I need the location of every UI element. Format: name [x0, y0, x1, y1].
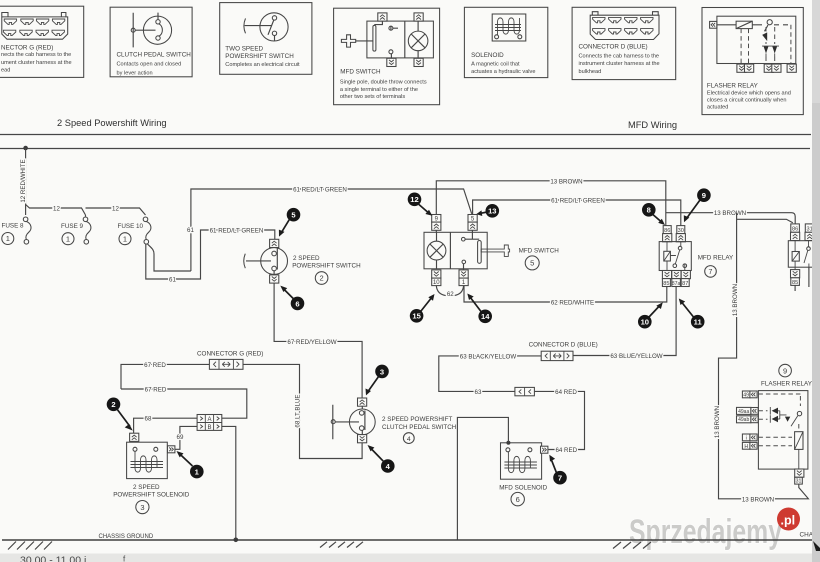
svg-text:Connects the cab harness to th: Connects the cab harness to the	[579, 53, 660, 59]
svg-text:69: 69	[177, 434, 184, 441]
svg-text:Single pole, double throw conn: Single pole, double throw connects	[340, 79, 427, 85]
svg-text:13 BROWN: 13 BROWN	[714, 210, 746, 217]
svg-text:i: i	[746, 435, 747, 441]
svg-text:49aa: 49aa	[738, 409, 749, 415]
svg-text:instrument cluster harness at: instrument cluster harness at the	[579, 61, 660, 67]
svg-text:POWERSHIFT SOLENOID: POWERSHIFT SOLENOID	[113, 492, 190, 499]
svg-text:13 BROWN: 13 BROWN	[550, 178, 582, 185]
svg-text:MFD SOLENOID: MFD SOLENOID	[499, 485, 547, 492]
svg-text:CHA: CHA	[800, 532, 814, 539]
svg-text:12: 12	[53, 205, 60, 212]
svg-text:12 RED/WHITE: 12 RED/WHITE	[20, 159, 27, 202]
svg-text:other two sets of terminals: other two sets of terminals	[340, 94, 405, 100]
svg-text:A magnetic coil that: A magnetic coil that	[471, 61, 520, 67]
svg-text:14: 14	[481, 312, 490, 321]
svg-text:49ab: 49ab	[738, 417, 749, 423]
svg-text:1: 1	[6, 234, 10, 243]
svg-text:actuates a hydraulic valve: actuates a hydraulic valve	[471, 69, 535, 75]
svg-text:63: 63	[475, 389, 482, 396]
svg-text:68 LT BLUE: 68 LT BLUE	[295, 394, 302, 427]
svg-text:MFD Wiring: MFD Wiring	[628, 120, 677, 130]
svg-text:7: 7	[709, 269, 713, 276]
svg-text:3: 3	[140, 503, 144, 512]
svg-text:3: 3	[380, 367, 384, 376]
svg-text:2 SPEED POWERSHIFT: 2 SPEED POWERSHIFT	[382, 416, 452, 423]
svg-text:FUSE 10: FUSE 10	[118, 223, 144, 230]
svg-text:30.00 - 11.00 i: 30.00 - 11.00 i	[20, 555, 86, 562]
svg-text:FUSE 9: FUSE 9	[61, 223, 84, 230]
svg-text:SOLENOID: SOLENOID	[471, 52, 504, 59]
svg-text:TWO SPEED: TWO SPEED	[225, 45, 263, 52]
svg-text:87a: 87a	[672, 281, 681, 287]
svg-text:61 RED/LT GREEN: 61 RED/LT GREEN	[293, 187, 347, 194]
svg-text:FLASHER RELAY: FLASHER RELAY	[707, 83, 759, 90]
svg-text:Completes an electrical circui: Completes an electrical circuit	[225, 62, 300, 68]
svg-text:2: 2	[320, 274, 324, 283]
svg-text:Contacts open and closed: Contacts open and closed	[117, 62, 182, 68]
svg-text:A: A	[207, 417, 211, 423]
svg-text:31: 31	[796, 479, 802, 485]
svg-text:62: 62	[447, 291, 454, 298]
svg-text:2 SPEED: 2 SPEED	[133, 484, 160, 491]
svg-text:64 RED: 64 RED	[555, 389, 577, 396]
svg-text:2 Speed Powershift Wiring: 2 Speed Powershift Wiring	[57, 118, 167, 128]
svg-text:bulkhead: bulkhead	[579, 69, 602, 75]
svg-text:CLUTCH PEDAL SWITCH: CLUTCH PEDAL SWITCH	[117, 51, 192, 58]
svg-text:67 RED/YELLOW: 67 RED/YELLOW	[287, 339, 336, 346]
svg-text:FUSE 8: FUSE 8	[2, 223, 25, 230]
svg-text:1: 1	[123, 234, 127, 243]
svg-text:85: 85	[663, 281, 669, 287]
svg-text:15: 15	[412, 312, 421, 321]
svg-text:closes a circuit continually w: closes a circuit continually when	[707, 98, 787, 104]
svg-text:13 BROWN: 13 BROWN	[714, 406, 721, 438]
svg-text:CONNECTOR D (BLUE): CONNECTOR D (BLUE)	[529, 342, 598, 349]
svg-text:CONNECTOR D (BLUE): CONNECTOR D (BLUE)	[579, 44, 648, 51]
svg-text:62 RED/WHITE: 62 RED/WHITE	[551, 300, 594, 307]
svg-text:POWERSHIFT SWITCH: POWERSHIFT SWITCH	[292, 263, 361, 270]
svg-text:5: 5	[530, 259, 534, 268]
svg-text:9: 9	[702, 191, 706, 200]
svg-text:2: 2	[111, 400, 115, 409]
svg-text:Electrical device which opens: Electrical device which opens and	[707, 91, 791, 97]
svg-text:61 RED/LT GREEN: 61 RED/LT GREEN	[551, 198, 605, 205]
svg-text:CLUTCH PEDAL SWITCH: CLUTCH PEDAL SWITCH	[382, 424, 457, 431]
svg-text:68: 68	[145, 416, 152, 423]
svg-text:nects the cab harness to the: nects the cab harness to the	[1, 52, 71, 58]
svg-text:.pl: .pl	[781, 514, 796, 528]
svg-text:MFD RELAY: MFD RELAY	[698, 254, 734, 261]
svg-text:31: 31	[806, 226, 812, 232]
svg-text:61: 61	[187, 227, 194, 234]
svg-text:67 RED: 67 RED	[144, 362, 166, 369]
svg-text:61: 61	[169, 277, 176, 284]
svg-text:10: 10	[433, 280, 440, 286]
svg-text:ead: ead	[1, 67, 10, 73]
svg-text:7: 7	[558, 474, 562, 483]
svg-text:6: 6	[295, 299, 299, 308]
svg-text:12: 12	[410, 195, 418, 204]
svg-text:63 BLACK/YELLOW: 63 BLACK/YELLOW	[460, 353, 517, 360]
svg-text:Sprzedajemy: Sprzedajemy	[629, 513, 782, 551]
svg-text:MFD SWITCH: MFD SWITCH	[340, 69, 381, 76]
svg-text:9: 9	[783, 366, 787, 375]
svg-text:B: B	[207, 425, 211, 431]
svg-text:CHASSIS GROUND: CHASSIS GROUND	[99, 534, 154, 540]
svg-text:FLASHER RELAY: FLASHER RELAY	[761, 380, 813, 387]
svg-text:CONNECTOR G (RED): CONNECTOR G (RED)	[197, 350, 263, 357]
svg-text:12: 12	[112, 205, 119, 212]
svg-text:4: 4	[407, 436, 411, 443]
svg-text:ument cluster harness at t: ument cluster harness at the	[1, 60, 72, 66]
svg-text:8: 8	[647, 206, 651, 215]
svg-text:2 SPEED: 2 SPEED	[293, 255, 320, 262]
svg-text:a single terminal to eithe: a single terminal to either of the	[340, 87, 418, 93]
svg-text:NECTOR G (RED): NECTOR G (RED)	[1, 44, 53, 51]
svg-text:85: 85	[792, 280, 798, 286]
svg-text:13: 13	[488, 207, 496, 216]
svg-text:86: 86	[792, 226, 798, 232]
svg-text:13 BROWN: 13 BROWN	[732, 284, 739, 316]
svg-text:67 RED: 67 RED	[145, 387, 167, 394]
svg-text:49: 49	[743, 392, 749, 398]
svg-text:61 RED/LT GREEN: 61 RED/LT GREEN	[210, 228, 264, 235]
svg-text:1: 1	[66, 234, 70, 243]
svg-text:10: 10	[641, 318, 649, 327]
svg-text:actuated: actuated	[707, 105, 728, 111]
svg-text:by lever action: by lever action	[117, 70, 153, 76]
svg-text:H: H	[744, 444, 748, 450]
svg-text:13 BROWN: 13 BROWN	[742, 496, 774, 503]
svg-text:POWERSHIFT SWITCH: POWERSHIFT SWITCH	[225, 53, 294, 60]
svg-text:64 RED: 64 RED	[555, 447, 577, 454]
svg-text:63 BLUE/YELLOW: 63 BLUE/YELLOW	[610, 353, 662, 360]
svg-text:87: 87	[682, 281, 688, 287]
svg-text:6: 6	[516, 495, 520, 504]
svg-text:MFD SWITCH: MFD SWITCH	[519, 247, 560, 254]
svg-text:11: 11	[694, 318, 703, 327]
